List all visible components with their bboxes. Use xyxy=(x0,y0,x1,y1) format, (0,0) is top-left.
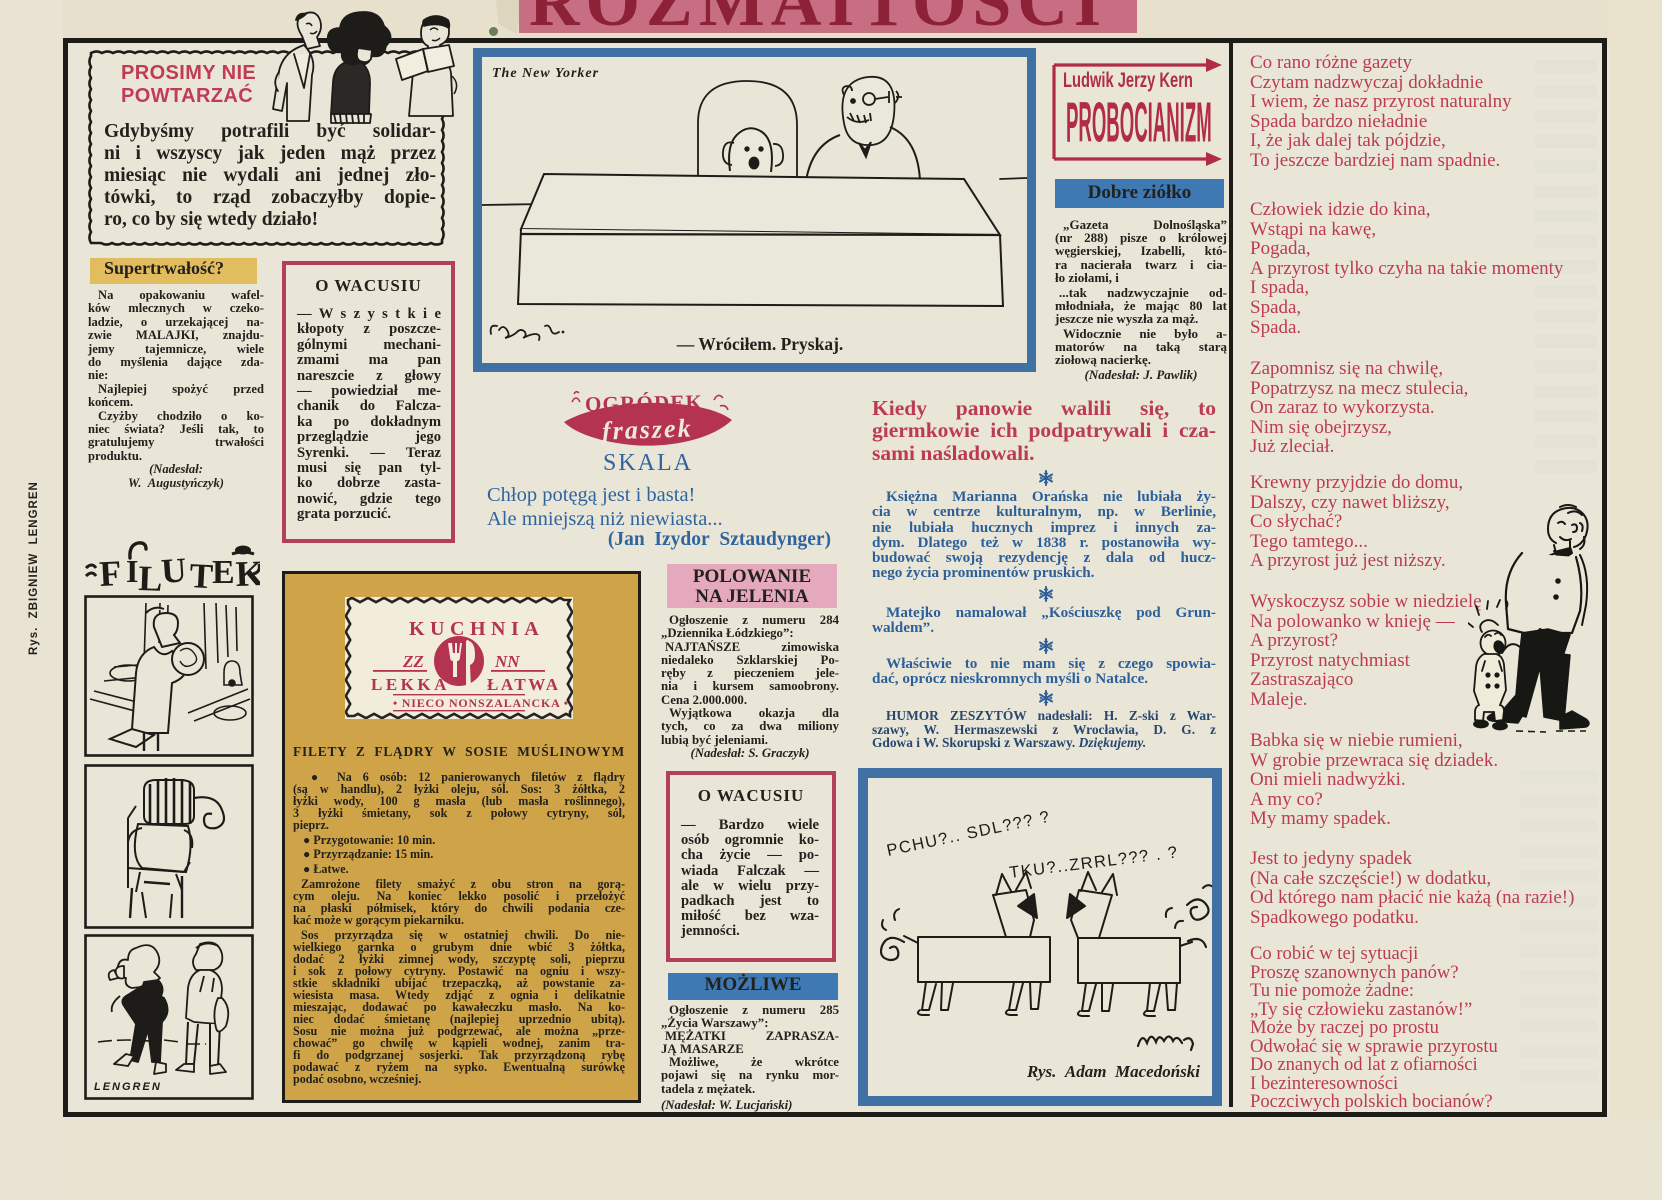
svg-text:U: U xyxy=(160,550,188,591)
svg-text:F: F xyxy=(98,553,122,594)
svg-text:ZZ: ZZ xyxy=(402,652,424,671)
svg-text:NN: NN xyxy=(494,652,520,671)
svg-text:LEKKA: LEKKA xyxy=(371,675,450,694)
svg-text:fraszek: fraszek xyxy=(602,413,694,445)
svg-text:I: I xyxy=(126,553,138,589)
svg-text:OGRÓDEK: OGRÓDEK xyxy=(585,390,703,416)
svg-text:ŁATWA: ŁATWA xyxy=(487,675,561,694)
svg-text:T: T xyxy=(189,556,214,594)
svg-text:E: E xyxy=(212,554,235,591)
svg-text:• NIECO NONSZALANCKA •: • NIECO NONSZALANCKA • xyxy=(393,696,569,710)
svg-text:PCHU?.. SDL??? ?: PCHU?.. SDL??? ? xyxy=(885,808,1052,860)
svg-text:KUCHNIA: KUCHNIA xyxy=(409,618,544,640)
svg-text:L: L xyxy=(138,558,163,594)
svg-text:LENGREN: LENGREN xyxy=(94,1081,162,1093)
svg-text:TKU?..ZRRL??? . ?: TKU?..ZRRL??? . ? xyxy=(1008,843,1179,882)
